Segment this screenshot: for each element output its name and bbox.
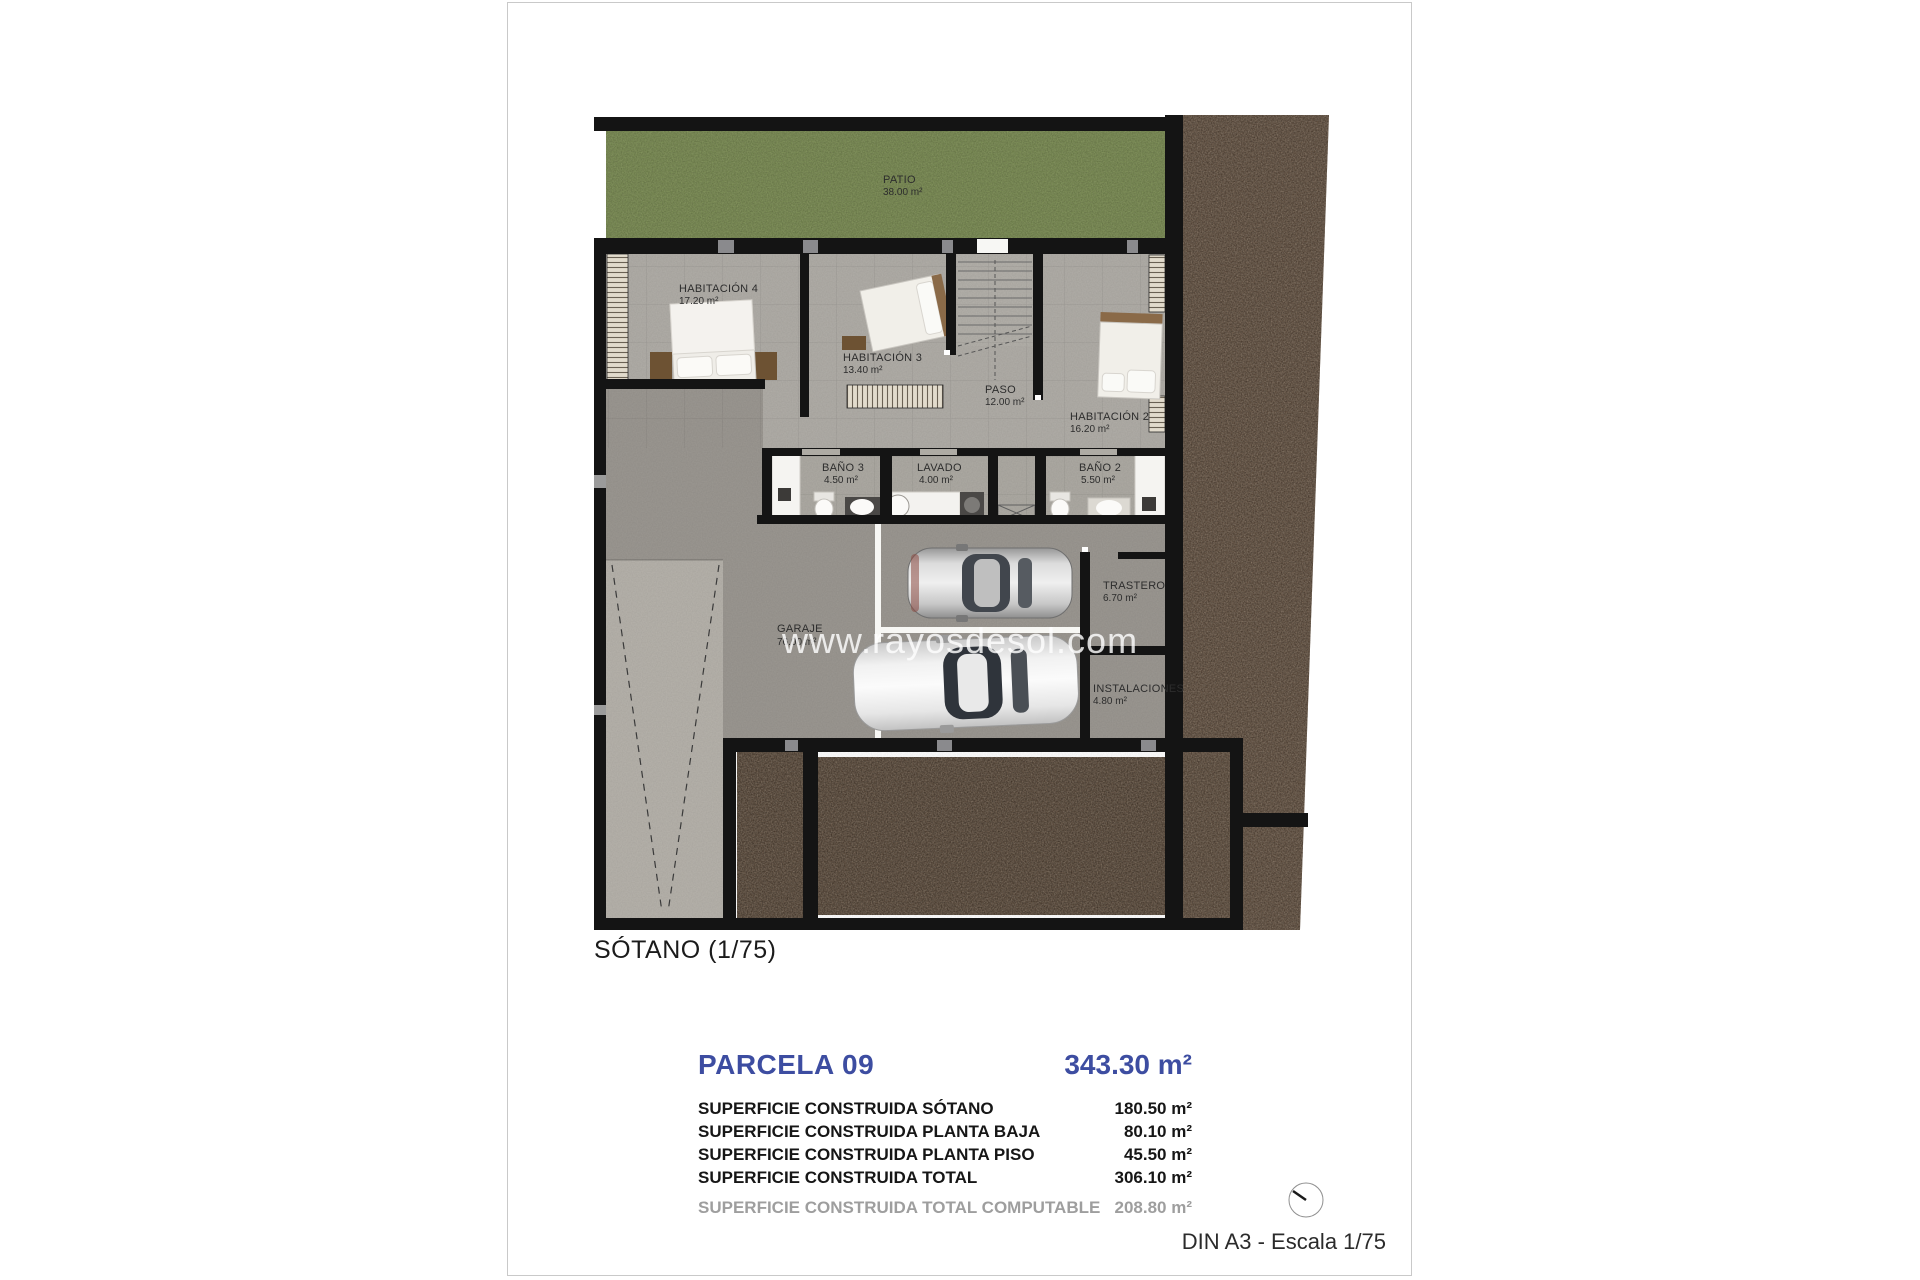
summary-row-label: SUPERFICIE CONSTRUIDA PLANTA BAJA <box>698 1120 1040 1143</box>
svg-text:17.20 m²: 17.20 m² <box>679 296 719 307</box>
svg-text:16.20 m²: 16.20 m² <box>1070 424 1110 435</box>
summary-row-planta-baja: SUPERFICIE CONSTRUIDA PLANTA BAJA 80.10 … <box>698 1120 1192 1143</box>
north-arrow-icon <box>1287 1181 1325 1219</box>
summary-row-total-computable: SUPERFICIE CONSTRUIDA TOTAL COMPUTABLE 2… <box>698 1196 1192 1219</box>
svg-text:HABITACIÓN 4: HABITACIÓN 4 <box>679 282 758 295</box>
scale-note: DIN A3 - Escala 1/75 <box>1182 1229 1386 1255</box>
summary-row-value: 45.50 m² <box>1124 1143 1192 1166</box>
svg-text:38.00 m²: 38.00 m² <box>883 187 923 198</box>
svg-text:HABITACIÓN 2: HABITACIÓN 2 <box>1070 410 1149 423</box>
svg-text:PATIO: PATIO <box>883 174 916 186</box>
summary-row-label: SUPERFICIE CONSTRUIDA TOTAL <box>698 1166 977 1189</box>
svg-text:HABITACIÓN 3: HABITACIÓN 3 <box>843 351 922 364</box>
summary-row-total: SUPERFICIE CONSTRUIDA TOTAL 306.10 m² <box>698 1166 1192 1189</box>
svg-text:BAÑO 2: BAÑO 2 <box>1079 461 1121 474</box>
svg-text:4.50 m²: 4.50 m² <box>824 475 859 486</box>
svg-text:BAÑO 3: BAÑO 3 <box>822 461 864 474</box>
summary-row-planta-piso: SUPERFICIE CONSTRUIDA PLANTA PISO 45.50 … <box>698 1143 1192 1166</box>
car-1 <box>908 544 1072 622</box>
summary-row-label: SUPERFICIE CONSTRUIDA TOTAL COMPUTABLE <box>698 1196 1100 1219</box>
floorplan-canvas: PATIO 38.00 m² HABITACIÓN 4 17.20 m² HAB… <box>0 0 1920 1280</box>
svg-text:TRASTERO: TRASTERO <box>1103 580 1165 592</box>
parcel-label: PARCELA 09 <box>698 1049 874 1081</box>
summary-row-label: SUPERFICIE CONSTRUIDA PLANTA PISO <box>698 1143 1035 1166</box>
room-label-bano-3: BAÑO 3 4.50 m² <box>822 461 864 486</box>
room-label-bano-2: BAÑO 2 5.50 m² <box>1079 461 1121 486</box>
summary-row-value: 180.50 m² <box>1115 1097 1193 1120</box>
summary-row-value: 80.10 m² <box>1124 1120 1192 1143</box>
plan-title: SÓTANO (1/75) <box>594 936 776 965</box>
svg-text:4.00 m²: 4.00 m² <box>919 475 954 486</box>
summary-row-label: SUPERFICIE CONSTRUIDA SÓTANO <box>698 1097 994 1120</box>
surface-summary: PARCELA 09 343.30 m² SUPERFICIE CONSTRUI… <box>698 1049 1192 1219</box>
svg-text:13.40 m²: 13.40 m² <box>843 365 883 376</box>
plan-sheet: PATIO 38.00 m² HABITACIÓN 4 17.20 m² HAB… <box>507 2 1412 1276</box>
summary-row-sotano: SUPERFICIE CONSTRUIDA SÓTANO 180.50 m² <box>698 1097 1192 1120</box>
parcel-area: 343.30 m² <box>1064 1049 1192 1081</box>
svg-text:12.00 m²: 12.00 m² <box>985 397 1025 408</box>
watermark: www.rayosdesol.com <box>781 620 1138 661</box>
parcel-header: PARCELA 09 343.30 m² <box>698 1049 1192 1081</box>
svg-text:INSTALACIONES: INSTALACIONES <box>1093 683 1184 695</box>
svg-text:LAVADO: LAVADO <box>917 462 962 474</box>
svg-text:4.80 m²: 4.80 m² <box>1093 696 1128 707</box>
summary-row-value: 306.10 m² <box>1115 1166 1193 1189</box>
svg-text:6.70 m²: 6.70 m² <box>1103 593 1138 604</box>
svg-text:5.50 m²: 5.50 m² <box>1081 475 1116 486</box>
svg-text:PASO: PASO <box>985 384 1016 396</box>
summary-row-value: 208.80 m² <box>1115 1196 1193 1219</box>
